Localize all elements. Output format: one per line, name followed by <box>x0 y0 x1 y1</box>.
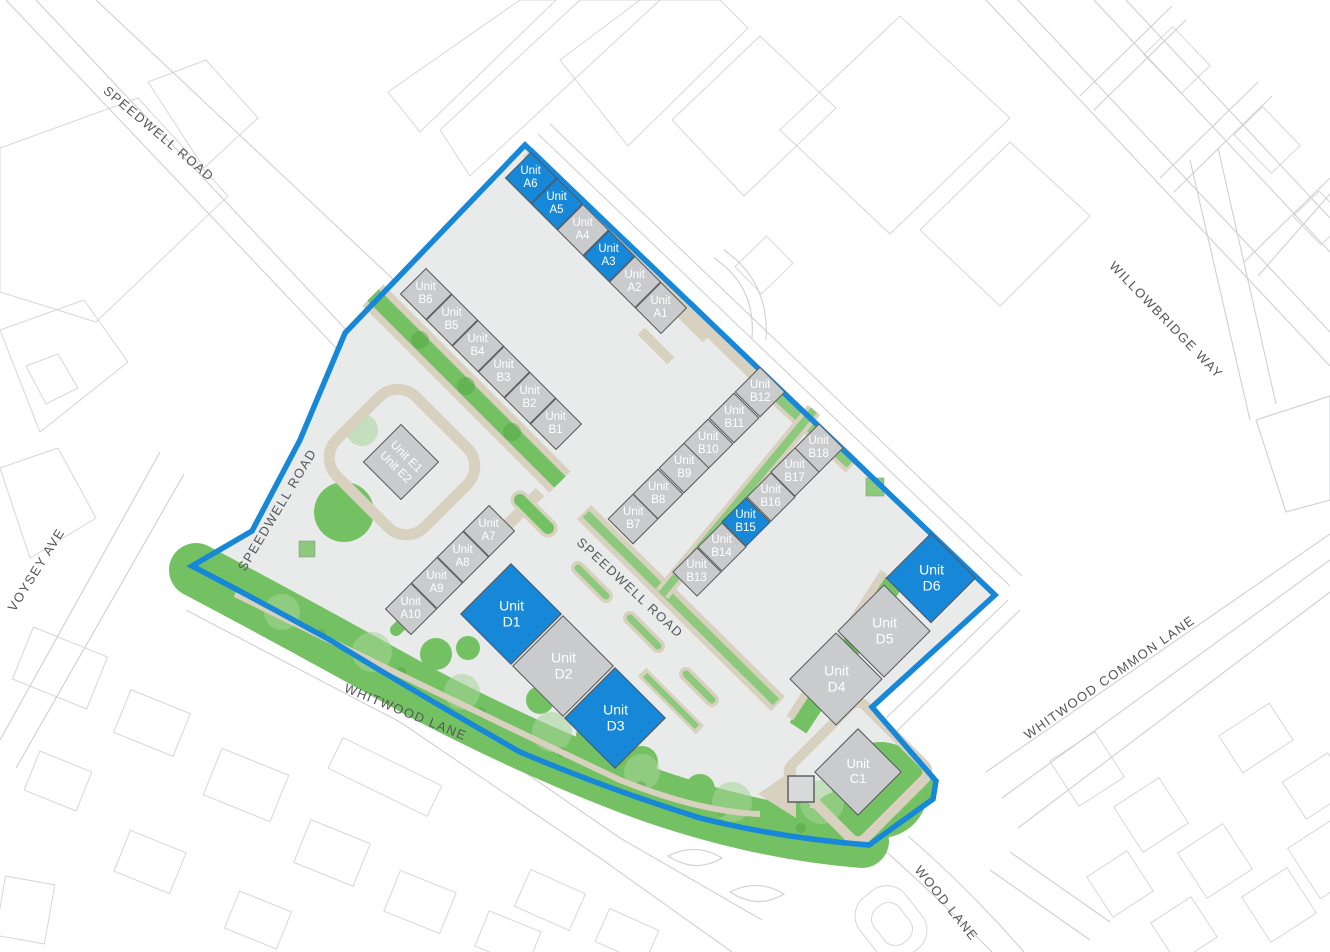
unit-a1-label: Unit A1 <box>651 295 671 321</box>
site-plan: SPEEDWELL ROAD SPEEDWELL ROAD SPEEDWELL … <box>0 0 1330 952</box>
unit-a10-label: Unit A10 <box>401 596 421 622</box>
unit-c1-label: Unit C1 <box>846 757 869 786</box>
unit-d4-label: Unit D4 <box>824 663 849 694</box>
unit-b1-label: Unit B1 <box>546 411 566 437</box>
unit-a2-label: Unit A2 <box>625 269 645 295</box>
unit-b4-label: Unit B4 <box>468 333 488 359</box>
unit-d1-label: Unit D1 <box>499 598 524 629</box>
street-label-wood-lane: WOOD LANE <box>912 863 982 944</box>
unit-a9-label: Unit A9 <box>427 570 447 596</box>
unit-b16-label: Unit B16 <box>761 484 781 510</box>
unit-b14-label: Unit B14 <box>712 534 732 560</box>
unit-d2-label: Unit D2 <box>551 650 576 681</box>
unit-b13-label: Unit B13 <box>687 559 707 585</box>
unit-d6-label: Unit D6 <box>919 562 944 593</box>
unit-d5-label: Unit D5 <box>872 615 897 646</box>
unit-b5-label: Unit B5 <box>442 307 462 333</box>
unit-a4-label: Unit A4 <box>573 217 593 243</box>
unit-a3-label: Unit A3 <box>599 243 619 269</box>
unit-b15-label: Unit B15 <box>736 509 756 535</box>
unit-a5-label: Unit A5 <box>547 191 567 217</box>
unit-b7-label: Unit B7 <box>623 506 643 532</box>
unit-b12-label: Unit B12 <box>750 379 770 405</box>
unit-b10-label: Unit B10 <box>698 431 718 457</box>
unit-b2-label: Unit B2 <box>520 385 540 411</box>
unit-a8-label: Unit A8 <box>453 544 473 570</box>
unit-b6-label: Unit B6 <box>416 281 436 307</box>
unit-d3-label: Unit D3 <box>603 702 628 733</box>
unit-b11-label: Unit B11 <box>724 405 744 431</box>
street-label-whitwood-common-lane: WHITWOOD COMMON LANE <box>1021 612 1197 742</box>
street-label-voysey-ave: VOYSEY AVE <box>5 525 68 614</box>
unit-a7-label: Unit A7 <box>479 518 499 544</box>
unit-b18-label: Unit B18 <box>809 435 829 461</box>
unit-b9-label: Unit B9 <box>674 455 694 481</box>
unit-b3-label: Unit B3 <box>494 359 514 385</box>
street-label-willowbridge-way: WILLOWBRIDGE WAY <box>1106 258 1226 381</box>
unit-b17-label: Unit B17 <box>785 459 805 485</box>
substation-square <box>788 776 814 802</box>
unit-a6-label: Unit A6 <box>521 165 541 191</box>
unit-b8-label: Unit B8 <box>648 481 668 507</box>
